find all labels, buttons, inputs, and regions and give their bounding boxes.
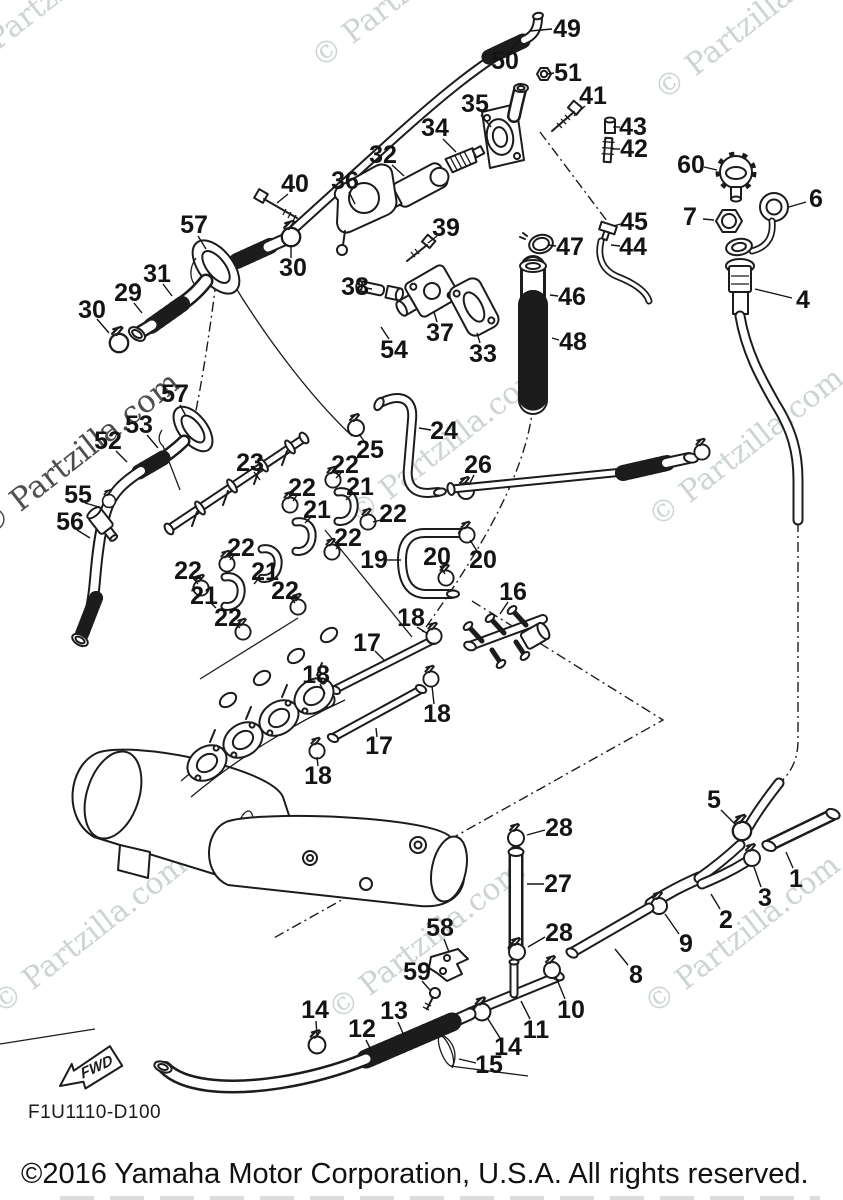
- part-number-label: 49: [553, 15, 581, 43]
- part-number-label: 29: [114, 279, 142, 307]
- part-number-label: 36: [331, 167, 359, 195]
- screw-59: [423, 988, 440, 1010]
- leader-line: [527, 830, 545, 835]
- parts-diagram-page: © Partzilla.com© Partzilla.com© Partzill…: [0, 0, 843, 1200]
- part-number-label: 50: [491, 47, 519, 75]
- part-number-label: 20: [469, 546, 497, 574]
- part-number-label: 6: [809, 185, 823, 213]
- part-number-label: 15: [475, 1051, 503, 1079]
- part-number-label: 21: [346, 473, 374, 501]
- part-number-label: 19: [360, 546, 388, 574]
- part-number-label: 35: [461, 90, 489, 118]
- part-number-label: 22: [174, 557, 202, 585]
- sensor-34: [446, 142, 487, 174]
- leader-line: [550, 295, 558, 296]
- part-number-label: 42: [620, 135, 648, 163]
- leader-line: [665, 914, 679, 934]
- part-number-label: 7: [683, 203, 697, 231]
- leader-line: [703, 219, 714, 220]
- leader-line: [721, 810, 736, 825]
- part-number-label: 12: [348, 1015, 376, 1043]
- part-number-label: 10: [557, 996, 585, 1024]
- watermark: © Partzilla.com: [638, 847, 843, 1021]
- part-number-label: 18: [397, 604, 425, 632]
- part-number-label: 24: [430, 417, 458, 445]
- leader-line: [755, 289, 792, 298]
- part-number-label: 25: [356, 436, 384, 464]
- breather-tube-46-48: [520, 260, 546, 400]
- clamp-47: [520, 232, 555, 255]
- part-number-label: 8: [629, 961, 643, 989]
- part-number-label: 28: [545, 814, 573, 842]
- part-number-label: 32: [369, 141, 397, 169]
- part-number-label: 17: [353, 629, 381, 657]
- joint-connector-16: [462, 604, 552, 669]
- part-number-label: 4: [796, 286, 810, 314]
- part-number-label: 37: [426, 319, 454, 347]
- part-number-label: 47: [556, 233, 584, 261]
- leader-line: [552, 338, 559, 340]
- part-number-label: 33: [469, 340, 497, 368]
- leader-line: [528, 937, 545, 947]
- part-number-label: 9: [679, 930, 693, 958]
- watermark: © Partzilla.com: [0, 0, 159, 82]
- part-number-label: 22: [271, 577, 299, 605]
- part-number-label: 60: [677, 151, 705, 179]
- part-number-label: 54: [380, 336, 408, 364]
- part-number-label: 20: [423, 543, 451, 571]
- part-number-label: 51: [554, 59, 582, 87]
- part-number-label: 57: [161, 380, 189, 408]
- leader-line: [548, 245, 556, 246]
- part-number-label: 18: [423, 700, 451, 728]
- diagram-canvas: © Partzilla.com© Partzilla.com© Partzill…: [0, 0, 843, 1200]
- part-number-label: 1: [789, 865, 803, 893]
- part-number-label: 30: [78, 296, 106, 324]
- part-number-label: 22: [379, 500, 407, 528]
- diagram-code: F1U1110-D100: [28, 1102, 161, 1123]
- nipple-42: [601, 138, 615, 163]
- part-number-label: 18: [302, 661, 330, 689]
- part-number-label: 56: [56, 508, 84, 536]
- part-number-label: 14: [301, 996, 329, 1024]
- part-number-label: 40: [281, 170, 309, 198]
- leader-line: [615, 949, 628, 965]
- part-number-label: 30: [279, 254, 307, 282]
- part-number-label: 58: [426, 914, 454, 942]
- part-number-label: 39: [432, 214, 460, 242]
- part-number-label: 22: [334, 524, 362, 552]
- part-number-label: 57: [180, 211, 208, 239]
- watermark: © Partzilla.com: [0, 847, 194, 1021]
- part-number-label: 38: [341, 273, 369, 301]
- part-number-label: 44: [619, 233, 647, 261]
- copyright-text: ©2016 Yamaha Motor Corporation, U.S.A. A…: [21, 1158, 809, 1190]
- part-number-label: 3: [758, 884, 772, 912]
- part-number-label: 52: [94, 427, 122, 455]
- part-number-label: 2: [719, 906, 733, 934]
- leader-line: [547, 73, 554, 74]
- part-number-label: 11: [523, 1016, 550, 1044]
- part-number-label: 48: [559, 328, 587, 356]
- part-number-label: 34: [421, 114, 449, 142]
- fuel-filler-assembly: [716, 154, 798, 826]
- part-number-label: 17: [365, 732, 393, 760]
- part-number-label: 27: [544, 870, 572, 898]
- part-number-label: 26: [464, 451, 492, 479]
- part-number-label: 16: [499, 578, 527, 606]
- part-number-label: 41: [579, 82, 607, 110]
- fwd-arrow: FWD: [54, 1045, 125, 1098]
- part-number-label: 45: [620, 208, 648, 236]
- watermark: © Partzilla.com: [642, 360, 843, 534]
- plug-43: [605, 118, 615, 134]
- part-number-label: 22: [214, 604, 242, 632]
- part-number-label: 59: [403, 958, 431, 986]
- part-number-label: 28: [545, 919, 573, 947]
- part-number-label: 23: [236, 449, 264, 477]
- leader-line: [459, 1059, 476, 1063]
- leader-line: [789, 202, 806, 207]
- leader-line: [704, 167, 717, 170]
- part-number-label: 55: [64, 481, 92, 509]
- watermark: © Partzilla.com: [648, 0, 843, 108]
- part-number-label: 5: [707, 786, 721, 814]
- part-number-label: 53: [125, 411, 153, 439]
- part-number-label: 18: [304, 762, 332, 790]
- engine-assembly: [73, 625, 473, 906]
- part-number-label: 13: [380, 997, 408, 1025]
- part-number-label: 46: [558, 283, 586, 311]
- part-number-label: 21: [303, 496, 331, 524]
- part-number-label: 31: [143, 260, 171, 288]
